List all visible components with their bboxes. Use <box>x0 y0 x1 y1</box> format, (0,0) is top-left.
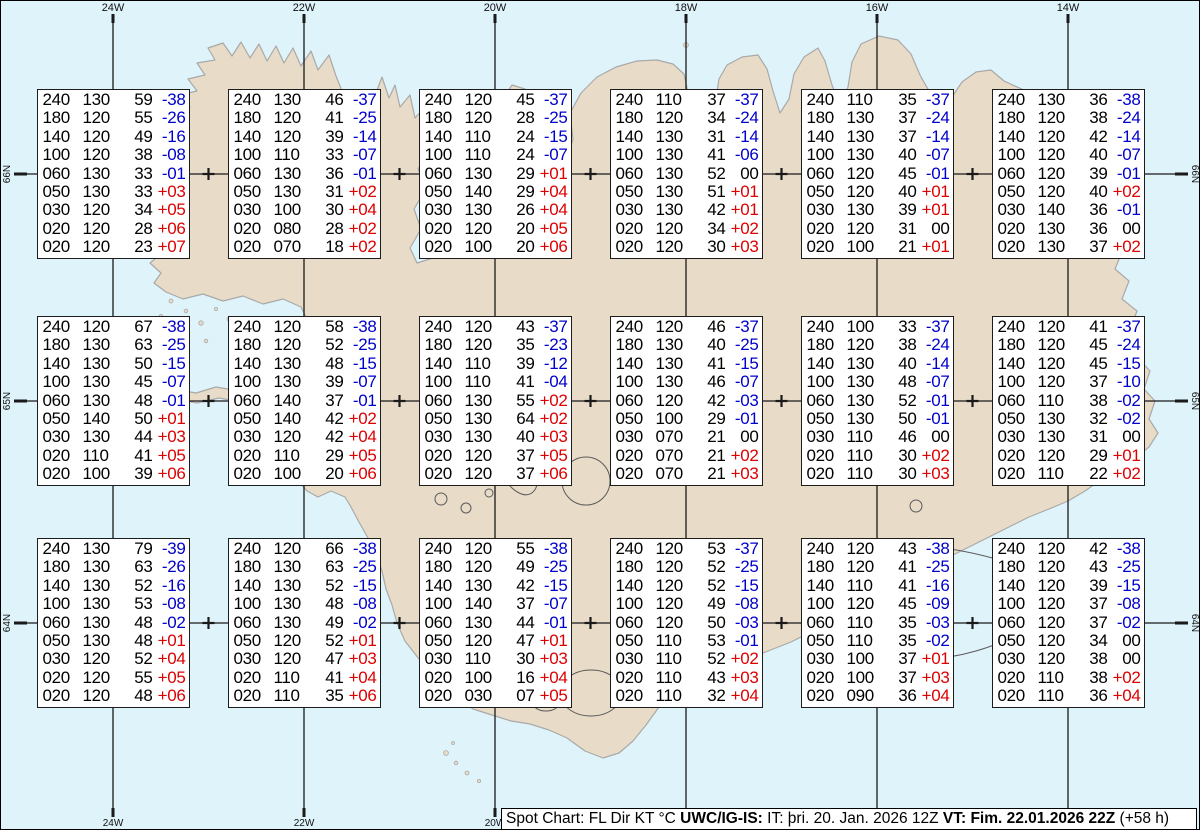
station-row: 02011041+05 <box>43 447 189 465</box>
dir-value: 120 <box>1038 540 1082 558</box>
fl-value: 060 <box>425 614 465 632</box>
fl-value: 180 <box>234 558 274 576</box>
fl-value: 050 <box>425 632 465 650</box>
fl-value: 180 <box>234 109 274 127</box>
kt-value: 44 <box>509 614 535 632</box>
kt-value: 45 <box>1082 355 1108 373</box>
station-row: 03010030+04 <box>234 201 380 219</box>
station-row: 03012052+04 <box>43 650 189 668</box>
temp-value: +04 <box>917 687 950 705</box>
dir-value: 100 <box>83 465 127 483</box>
fl-value: 060 <box>43 614 83 632</box>
station-row: 10013045-07 <box>43 373 189 391</box>
kt-value: 37 <box>891 128 917 146</box>
fl-value: 020 <box>425 687 465 705</box>
fl-value: 140 <box>43 577 83 595</box>
temp-value: +04 <box>344 428 377 446</box>
longitude-label-top: 18W <box>664 2 708 14</box>
temp-value: +02 <box>344 238 377 256</box>
dir-value: 110 <box>83 447 127 465</box>
dir-value: 120 <box>465 318 509 336</box>
station-row: 24012043-37 <box>425 318 571 336</box>
fl-value: 020 <box>998 669 1038 687</box>
temp-value: -02 <box>1108 392 1141 410</box>
kt-value: 07 <box>509 687 535 705</box>
kt-value: 37 <box>891 109 917 127</box>
dir-value: 110 <box>656 91 700 109</box>
station-row: 02011038+02 <box>998 669 1144 687</box>
dir-value: 120 <box>847 595 891 613</box>
temp-value: -15 <box>535 128 568 146</box>
fl-value: 180 <box>616 109 656 127</box>
kt-value: 28 <box>127 220 153 238</box>
fl-value: 180 <box>998 109 1038 127</box>
dir-value: 120 <box>847 220 891 238</box>
kt-value: 45 <box>891 595 917 613</box>
dir-value: 130 <box>847 128 891 146</box>
kt-value: 29 <box>318 447 344 465</box>
dir-value: 130 <box>656 146 700 164</box>
kt-value: 66 <box>318 540 344 558</box>
kt-value: 41 <box>700 355 726 373</box>
kt-value: 39 <box>1082 577 1108 595</box>
fl-value: 020 <box>616 447 656 465</box>
fl-value: 140 <box>234 128 274 146</box>
kt-value: 67 <box>127 318 153 336</box>
fl-value: 060 <box>998 614 1038 632</box>
kt-value: 52 <box>318 577 344 595</box>
temp-value: -10 <box>1108 373 1141 391</box>
dir-value: 130 <box>274 373 318 391</box>
station-row: 06013033-01 <box>43 165 189 183</box>
kt-value: 40 <box>1082 183 1108 201</box>
fl-value: 180 <box>43 109 83 127</box>
fl-value: 050 <box>43 410 83 428</box>
fl-value: 050 <box>998 410 1038 428</box>
kt-value: 37 <box>1082 373 1108 391</box>
dir-value: 110 <box>847 91 891 109</box>
station-row: 24012043-38 <box>807 540 953 558</box>
fl-value: 050 <box>616 183 656 201</box>
kt-value: 40 <box>891 146 917 164</box>
station-row: 06012039-01 <box>998 165 1144 183</box>
fl-value: 140 <box>43 355 83 373</box>
station-row: 18013040-25 <box>616 336 762 354</box>
station-row: 03013044+03 <box>43 428 189 446</box>
kt-value: 18 <box>318 238 344 256</box>
station-row: 0301203800 <box>998 650 1144 668</box>
station-row: 10012037-10 <box>998 373 1144 391</box>
legend-bar: Spot Chart: FL Dir KT °C UWC/IG-IS: IT: … <box>501 808 1197 830</box>
kt-value: 38 <box>1082 109 1108 127</box>
kt-value: 46 <box>318 91 344 109</box>
fl-value: 240 <box>234 318 274 336</box>
station-row: 06012045-01 <box>807 165 953 183</box>
kt-value: 30 <box>700 238 726 256</box>
dir-value: 110 <box>1038 465 1082 483</box>
fl-value: 100 <box>43 373 83 391</box>
station-row: 10011033-07 <box>234 146 380 164</box>
kt-value: 26 <box>509 201 535 219</box>
station-row: 03012042+04 <box>234 428 380 446</box>
fl-value: 020 <box>616 238 656 256</box>
fl-value: 180 <box>234 336 274 354</box>
kt-value: 37 <box>1082 595 1108 613</box>
fl-value: 060 <box>998 165 1038 183</box>
station-row: 02010037+03 <box>807 669 953 687</box>
kt-value: 42 <box>1082 540 1108 558</box>
temp-value: -38 <box>344 540 377 558</box>
kt-value: 48 <box>127 614 153 632</box>
station-row: 24012066-38 <box>234 540 380 558</box>
temp-value: -01 <box>917 165 950 183</box>
fl-value: 100 <box>616 595 656 613</box>
kt-value: 41 <box>891 577 917 595</box>
station-row: 02012023+07 <box>43 238 189 256</box>
kt-value: 41 <box>127 447 153 465</box>
temp-value: -38 <box>917 540 950 558</box>
kt-value: 29 <box>509 165 535 183</box>
temp-value: -07 <box>1108 146 1141 164</box>
dir-value: 120 <box>847 183 891 201</box>
dir-value: 140 <box>1038 201 1082 219</box>
fl-value: 030 <box>998 428 1038 446</box>
station-row: 02011041+04 <box>234 669 380 687</box>
kt-value: 38 <box>1082 669 1108 687</box>
kt-value: 52 <box>700 165 726 183</box>
dir-value: 120 <box>465 336 509 354</box>
fl-value: 020 <box>998 447 1038 465</box>
station-row: 06013029+01 <box>425 165 571 183</box>
station-row: 10013046-07 <box>616 373 762 391</box>
dir-value: 140 <box>465 595 509 613</box>
fl-value: 240 <box>425 91 465 109</box>
station-row: 05012040+02 <box>998 183 1144 201</box>
fl-value: 240 <box>234 91 274 109</box>
station-row: 10013048-07 <box>807 373 953 391</box>
fl-value: 020 <box>234 465 274 483</box>
temp-value: -15 <box>535 577 568 595</box>
station-row: 14013048-15 <box>234 355 380 373</box>
dir-value: 110 <box>656 650 700 668</box>
fl-value: 140 <box>425 577 465 595</box>
kt-value: 41 <box>700 146 726 164</box>
kt-value: 42 <box>1082 128 1108 146</box>
station-row: 02010020+06 <box>234 465 380 483</box>
temp-value: +07 <box>153 238 186 256</box>
fl-value: 050 <box>998 183 1038 201</box>
station-row: 18013037-24 <box>807 109 953 127</box>
station-row: 18012055-26 <box>43 109 189 127</box>
kt-value: 53 <box>700 540 726 558</box>
temp-value: +05 <box>535 687 568 705</box>
kt-value: 55 <box>509 392 535 410</box>
temp-value: +04 <box>344 201 377 219</box>
fl-value: 100 <box>425 595 465 613</box>
fl-value: 030 <box>616 650 656 668</box>
dir-value: 110 <box>465 146 509 164</box>
dir-value: 120 <box>1038 577 1082 595</box>
fl-value: 050 <box>234 183 274 201</box>
station-row: 24012053-37 <box>616 540 762 558</box>
dir-value: 120 <box>1038 373 1082 391</box>
kt-value: 39 <box>318 373 344 391</box>
fl-value: 180 <box>807 336 847 354</box>
temp-value: +06 <box>535 465 568 483</box>
legend-segment: Spot Chart: FL Dir KT °C <box>506 810 680 828</box>
station-row: 02010020+06 <box>425 238 571 256</box>
fl-value: 240 <box>425 540 465 558</box>
fl-value: 180 <box>425 558 465 576</box>
temp-value: -25 <box>726 336 759 354</box>
dir-value: 120 <box>465 540 509 558</box>
temp-value: -07 <box>535 146 568 164</box>
dir-value: 120 <box>83 669 127 687</box>
temp-value: -25 <box>535 558 568 576</box>
kt-value: 20 <box>509 220 535 238</box>
dir-value: 120 <box>656 595 700 613</box>
fl-value: 030 <box>807 201 847 219</box>
kt-value: 29 <box>509 183 535 201</box>
dir-value: 110 <box>656 669 700 687</box>
temp-value: -37 <box>1108 318 1141 336</box>
temp-value: -08 <box>153 146 186 164</box>
dir-value: 090 <box>847 687 891 705</box>
temp-value: -24 <box>1108 109 1141 127</box>
latitude-label-right: 66N <box>1188 159 1200 189</box>
kt-value: 52 <box>318 336 344 354</box>
temp-value: -08 <box>344 595 377 613</box>
station-row: 14013042-15 <box>425 577 571 595</box>
temp-value: -16 <box>153 128 186 146</box>
dir-value: 070 <box>656 428 700 446</box>
temp-value: -25 <box>344 109 377 127</box>
station-row: 14013037-14 <box>807 128 953 146</box>
temp-value: +02 <box>1108 465 1141 483</box>
dir-value: 130 <box>465 165 509 183</box>
fl-value: 020 <box>616 465 656 483</box>
temp-value: 00 <box>917 428 950 446</box>
kt-value: 33 <box>318 146 344 164</box>
kt-value: 38 <box>127 146 153 164</box>
kt-value: 33 <box>127 183 153 201</box>
station-box-r2c5: 24010033-3718012038-2414013040-141001304… <box>801 316 954 486</box>
spot-chart-iceland: 24W24W22W22W20W20W18W18W16W16W14W14W66N6… <box>0 0 1200 830</box>
kt-value: 50 <box>700 614 726 632</box>
fl-value: 020 <box>998 220 1038 238</box>
station-row: 10013039-07 <box>234 373 380 391</box>
kt-value: 28 <box>509 109 535 127</box>
station-row: 06012050-03 <box>616 614 762 632</box>
kt-value: 24 <box>509 128 535 146</box>
fl-value: 180 <box>807 558 847 576</box>
fl-value: 030 <box>616 428 656 446</box>
dir-value: 130 <box>656 183 700 201</box>
fl-value: 240 <box>616 540 656 558</box>
temp-value: +01 <box>535 632 568 650</box>
dir-value: 120 <box>83 238 127 256</box>
dir-value: 120 <box>1038 165 1082 183</box>
temp-value: +02 <box>917 447 950 465</box>
station-row: 0201203100 <box>807 220 953 238</box>
fl-value: 100 <box>234 146 274 164</box>
kt-value: 34 <box>127 201 153 219</box>
kt-value: 53 <box>127 595 153 613</box>
temp-value: -07 <box>535 595 568 613</box>
station-row: 18013063-25 <box>234 558 380 576</box>
station-row: 10013048-08 <box>234 595 380 613</box>
fl-value: 140 <box>998 355 1038 373</box>
fl-value: 240 <box>998 91 1038 109</box>
fl-value: 100 <box>234 595 274 613</box>
fl-value: 030 <box>425 201 465 219</box>
fl-value: 020 <box>425 669 465 687</box>
kt-value: 35 <box>509 336 535 354</box>
temp-value: +06 <box>535 238 568 256</box>
temp-value: -26 <box>153 558 186 576</box>
station-row: 10012038-08 <box>43 146 189 164</box>
temp-value: +05 <box>153 201 186 219</box>
station-box-r3c3: 24012055-3818012049-2514013042-151001403… <box>419 538 572 708</box>
temp-value: -14 <box>917 355 950 373</box>
temp-value: -03 <box>917 614 950 632</box>
station-row: 10013041-06 <box>616 146 762 164</box>
temp-value: -37 <box>535 91 568 109</box>
dir-value: 110 <box>274 687 318 705</box>
temp-value: -38 <box>153 318 186 336</box>
fl-value: 240 <box>43 540 83 558</box>
kt-value: 21 <box>891 238 917 256</box>
fl-value: 100 <box>616 146 656 164</box>
fl-value: 140 <box>616 128 656 146</box>
fl-value: 030 <box>998 650 1038 668</box>
kt-value: 35 <box>891 614 917 632</box>
station-row: 03011030+03 <box>425 650 571 668</box>
dir-value: 110 <box>847 428 891 446</box>
longitude-label-top: 16W <box>855 2 899 14</box>
temp-value: +06 <box>153 220 186 238</box>
kt-value: 23 <box>127 238 153 256</box>
kt-value: 46 <box>700 318 726 336</box>
dir-value: 120 <box>465 558 509 576</box>
station-row: 10011041-04 <box>425 373 571 391</box>
station-row: 05011053-01 <box>616 632 762 650</box>
temp-value: +01 <box>917 183 950 201</box>
kt-value: 63 <box>127 336 153 354</box>
station-row: 10012037-08 <box>998 595 1144 613</box>
fl-value: 140 <box>616 577 656 595</box>
fl-value: 180 <box>807 109 847 127</box>
kt-value: 48 <box>127 687 153 705</box>
fl-value: 060 <box>43 165 83 183</box>
station-row: 06013055+02 <box>425 392 571 410</box>
kt-value: 30 <box>891 447 917 465</box>
kt-value: 34 <box>1082 632 1108 650</box>
fl-value: 240 <box>616 91 656 109</box>
fl-value: 020 <box>998 238 1038 256</box>
station-row: 03013026+04 <box>425 201 571 219</box>
station-row: 06013049-02 <box>234 614 380 632</box>
dir-value: 120 <box>465 447 509 465</box>
station-row: 02007021+02 <box>616 447 762 465</box>
dir-value: 130 <box>847 109 891 127</box>
fl-value: 180 <box>998 558 1038 576</box>
kt-value: 52 <box>700 577 726 595</box>
dir-value: 130 <box>656 355 700 373</box>
fl-value: 050 <box>616 632 656 650</box>
temp-value: +04 <box>535 201 568 219</box>
dir-value: 100 <box>847 318 891 336</box>
station-box-r3c5: 24012043-3818012041-2514011041-161001204… <box>801 538 954 708</box>
temp-value: -01 <box>726 410 759 428</box>
dir-value: 120 <box>847 540 891 558</box>
fl-value: 140 <box>616 355 656 373</box>
fl-value: 020 <box>234 669 274 687</box>
station-row: 05013031+02 <box>234 183 380 201</box>
station-row: 03013039+01 <box>807 201 953 219</box>
station-row: 18012045-24 <box>998 336 1144 354</box>
dir-value: 120 <box>656 238 700 256</box>
station-row: 02003007+05 <box>425 687 571 705</box>
station-row: 02009036+04 <box>807 687 953 705</box>
dir-value: 120 <box>1038 355 1082 373</box>
kt-value: 31 <box>700 128 726 146</box>
dir-value: 130 <box>847 410 891 428</box>
fl-value: 180 <box>43 336 83 354</box>
dir-value: 110 <box>847 577 891 595</box>
kt-value: 55 <box>127 669 153 687</box>
fl-value: 030 <box>234 428 274 446</box>
temp-value: -02 <box>1108 614 1141 632</box>
kt-value: 52 <box>891 392 917 410</box>
station-row: 06013052-01 <box>807 392 953 410</box>
latitude-label-left: 64N <box>2 608 14 638</box>
fl-value: 060 <box>998 392 1038 410</box>
station-row: 05013064+02 <box>425 410 571 428</box>
dir-value: 120 <box>465 91 509 109</box>
kt-value: 40 <box>891 183 917 201</box>
kt-value: 42 <box>700 392 726 410</box>
dir-value: 120 <box>274 128 318 146</box>
fl-value: 140 <box>807 355 847 373</box>
station-row: 10014037-07 <box>425 595 571 613</box>
fl-value: 240 <box>425 318 465 336</box>
station-row: 0301303100 <box>998 428 1144 446</box>
dir-value: 130 <box>83 595 127 613</box>
station-row: 02011029+05 <box>234 447 380 465</box>
dir-value: 130 <box>465 614 509 632</box>
temp-value: -07 <box>917 146 950 164</box>
kt-value: 50 <box>127 410 153 428</box>
fl-value: 240 <box>998 318 1038 336</box>
kt-value: 42 <box>318 428 344 446</box>
kt-value: 59 <box>127 91 153 109</box>
dir-value: 130 <box>847 146 891 164</box>
dir-value: 130 <box>465 577 509 595</box>
fl-value: 140 <box>998 128 1038 146</box>
kt-value: 50 <box>127 355 153 373</box>
fl-value: 060 <box>807 165 847 183</box>
fl-value: 050 <box>998 632 1038 650</box>
kt-value: 41 <box>509 373 535 391</box>
latitude-label-left: 65N <box>2 386 14 416</box>
station-row: 03012034+05 <box>43 201 189 219</box>
dir-value: 080 <box>274 220 318 238</box>
kt-value: 55 <box>509 540 535 558</box>
fl-value: 140 <box>807 577 847 595</box>
station-row: 02012028+06 <box>43 220 189 238</box>
temp-value: -01 <box>153 165 186 183</box>
